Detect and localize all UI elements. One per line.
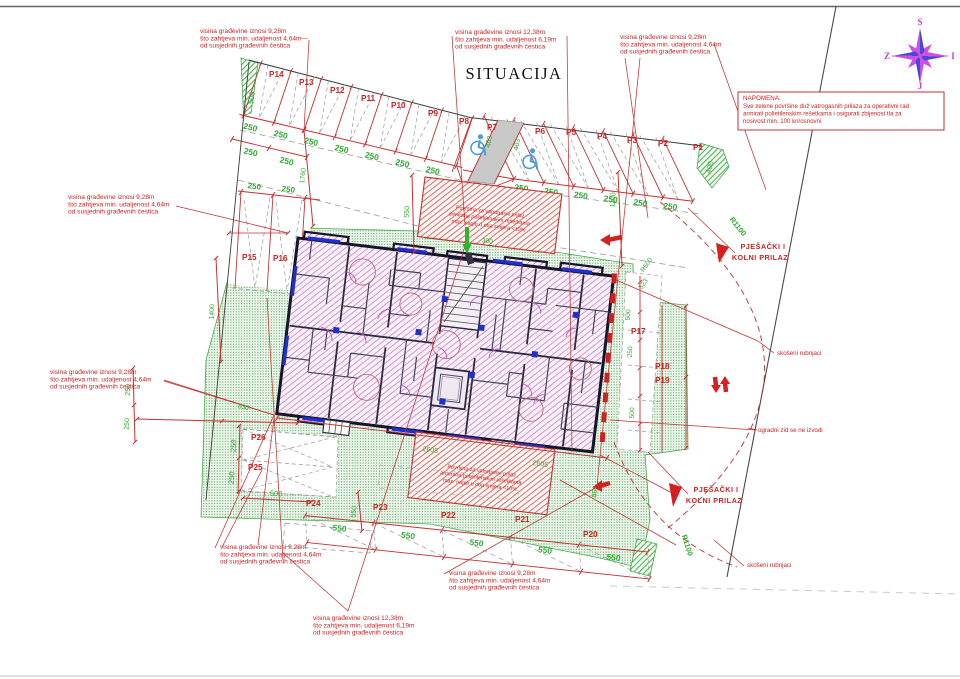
svg-text:J: J xyxy=(918,81,923,91)
svg-text:P4: P4 xyxy=(597,132,607,141)
svg-text:što zahtjeva min. udaljenost 4: što zahtjeva min. udaljenost 4,64m xyxy=(449,577,551,584)
svg-text:250: 250 xyxy=(247,181,262,192)
svg-text:250: 250 xyxy=(627,346,635,358)
svg-text:nosivost min. 100 kn/osnovni: nosivost min. 100 kn/osnovni xyxy=(743,118,821,125)
svg-text:250: 250 xyxy=(229,439,239,452)
svg-text:armirati polietilenskim rešetk: armirati polietilenskim rešetkama i osig… xyxy=(743,111,902,118)
svg-text:što zahtjeva min. udaljenost 4: što zahtjeva min. udaljenost 4,64m xyxy=(68,201,170,208)
svg-text:što zahtjeva min. udaljenost 4: što zahtjeva min. udaljenost 4,64m— xyxy=(200,35,309,42)
svg-text:Z: Z xyxy=(884,51,890,61)
svg-text:što zahtjeva min. udaljenost 6: što zahtjeva min. udaljenost 6,19m xyxy=(313,622,415,629)
svg-text:PJEŠAČKI I: PJEŠAČKI I xyxy=(741,242,786,251)
svg-text:što zahtjeva min. udaljenost 4: što zahtjeva min. udaljenost 4,64m xyxy=(220,551,322,558)
svg-text:500: 500 xyxy=(625,309,633,321)
svg-text:1100: 1100 xyxy=(609,192,617,208)
svg-text:500: 500 xyxy=(270,489,283,499)
svg-text:od susjednih građevnih čestica: od susjednih građevnih čestica xyxy=(620,49,711,56)
svg-text:visina građevine iznosi 9,28m: visina građevine iznosi 9,28m xyxy=(449,570,536,577)
svg-text:250: 250 xyxy=(124,418,132,430)
svg-text:što zahtjeva min. udaljenost 4: što zahtjeva min. udaljenost 4,64m xyxy=(50,376,152,383)
svg-text:P19: P19 xyxy=(655,376,670,385)
svg-text:500: 500 xyxy=(246,91,256,105)
svg-text:KOLNI PRILAZ: KOLNI PRILAZ xyxy=(686,496,742,505)
svg-text:250: 250 xyxy=(281,184,296,195)
svg-text:P16: P16 xyxy=(273,254,288,263)
svg-text:od susjednih građevnih čestica: od susjednih građevnih čestica xyxy=(455,44,546,51)
svg-text:P11: P11 xyxy=(361,94,376,103)
svg-text:P5: P5 xyxy=(566,128,576,137)
svg-text:300: 300 xyxy=(481,237,493,245)
svg-text:550: 550 xyxy=(350,506,358,518)
svg-text:P12: P12 xyxy=(330,86,345,95)
svg-text:SITUACIJA: SITUACIJA xyxy=(466,64,563,83)
svg-text:P1: P1 xyxy=(693,143,703,152)
svg-text:od susjednih građevnih čestica: od susjednih građevnih čestica xyxy=(220,559,311,566)
svg-text:P9: P9 xyxy=(428,109,438,118)
svg-text:skošeni rubnjaci: skošeni rubnjaci xyxy=(747,562,791,569)
svg-text:P6: P6 xyxy=(535,127,545,136)
svg-text:od susjednih građevnih čestica: od susjednih građevnih čestica xyxy=(200,43,291,50)
svg-text:visina građevine iznosi 9,28m: visina građevine iznosi 9,28m xyxy=(200,28,287,35)
svg-text:visina građevine iznosi 9,28m: visina građevine iznosi 9,28m xyxy=(50,369,137,376)
svg-text:Sve zelene površine duž vatrog: Sve zelene površine duž vatrogasnih pril… xyxy=(743,103,909,110)
svg-text:1400: 1400 xyxy=(209,304,217,320)
svg-text:od susjednih građevnih čestica: od susjednih građevnih čestica xyxy=(313,630,404,637)
svg-text:250: 250 xyxy=(573,189,589,201)
svg-text:ogradni zid se ne izvodi: ogradni zid se ne izvodi xyxy=(758,427,823,434)
svg-text:što zahtjeva min. udaljenost 6: što zahtjeva min. udaljenost 6,19m xyxy=(455,36,557,43)
svg-text:P10: P10 xyxy=(391,101,406,110)
svg-text:NAPOMENA:: NAPOMENA: xyxy=(743,95,781,102)
svg-text:KOLNI PRILAZ: KOLNI PRILAZ xyxy=(732,253,788,262)
svg-text:PJEŠAČKI I: PJEŠAČKI I xyxy=(694,485,739,494)
svg-text:P14: P14 xyxy=(269,70,284,79)
svg-text:P15: P15 xyxy=(242,253,257,262)
svg-text:visina građevine iznosi 9,28m: visina građevine iznosi 9,28m xyxy=(68,194,155,201)
svg-text:P17: P17 xyxy=(631,327,646,336)
svg-text:P22: P22 xyxy=(441,511,456,520)
svg-text:P7: P7 xyxy=(487,123,497,132)
svg-text:550: 550 xyxy=(404,206,412,218)
svg-text:što zahtjeva min. udaljenost 4: što zahtjeva min. udaljenost 4,64m xyxy=(620,41,722,48)
svg-text:skošeni rubnjaci: skošeni rubnjaci xyxy=(777,350,821,357)
svg-text:500: 500 xyxy=(629,407,637,419)
svg-text:P25: P25 xyxy=(248,463,263,472)
svg-text:S: S xyxy=(917,17,922,27)
svg-text:visina građevine iznosi 9,28m: visina građevine iznosi 9,28m xyxy=(220,544,307,551)
svg-text:P2: P2 xyxy=(658,139,668,148)
svg-text:P20: P20 xyxy=(583,530,598,539)
svg-text:od susjednih građevnih čestica: od susjednih građevnih čestica xyxy=(449,585,540,592)
svg-text:I: I xyxy=(951,51,955,61)
svg-text:visina građevine iznosi 12,38: visina građevine iznosi 12,38m xyxy=(455,29,546,36)
svg-text:P18: P18 xyxy=(655,362,670,371)
svg-text:visina građevine iznosi 12,38: visina građevine iznosi 12,38m xyxy=(313,615,404,622)
svg-text:250: 250 xyxy=(227,471,237,484)
svg-text:od susjednih građevnih čestica: od susjednih građevnih čestica xyxy=(68,209,159,216)
svg-text:od susjednih građevnih čestica: od susjednih građevnih čestica xyxy=(50,384,141,391)
svg-text:P24: P24 xyxy=(306,499,321,508)
svg-text:P21: P21 xyxy=(515,515,530,524)
svg-text:P8: P8 xyxy=(459,117,469,126)
svg-text:visina građevine iznosi 9,28m: visina građevine iznosi 9,28m xyxy=(620,34,707,41)
